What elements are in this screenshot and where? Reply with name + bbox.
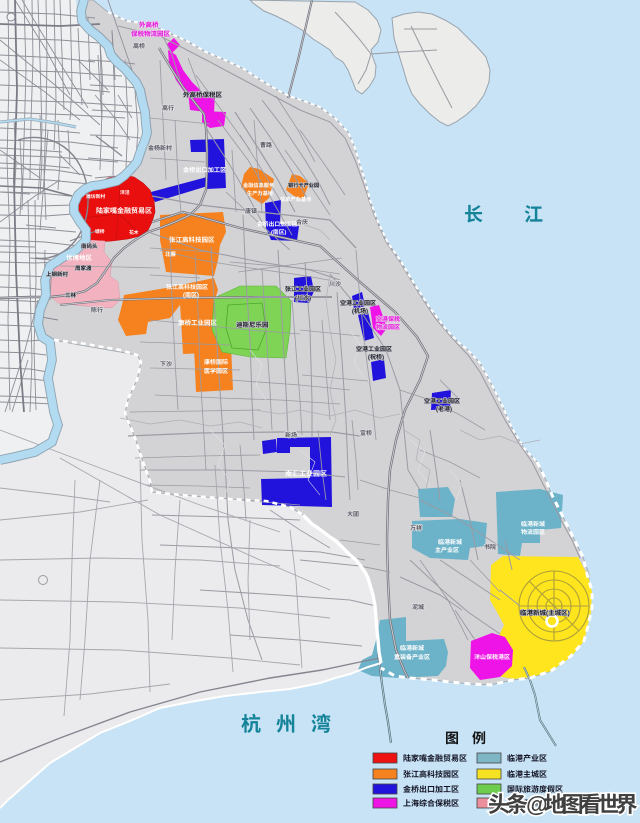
svg-text:外高桥保税区: 外高桥保税区: [183, 91, 223, 99]
svg-text:高行: 高行: [162, 104, 174, 112]
svg-text:塘桥: 塘桥: [95, 228, 105, 235]
svg-text:杭: 杭: [241, 713, 261, 736]
svg-text:花木: 花木: [129, 229, 139, 236]
svg-text:康桥国际: 康桥国际: [204, 358, 228, 366]
svg-text:金桥出口加工区: 金桥出口加工区: [183, 166, 226, 174]
svg-text:北蔡: 北蔡: [165, 251, 177, 258]
svg-text:迪斯尼乐园: 迪斯尼乐园: [236, 321, 269, 329]
svg-text:主产业区: 主产业区: [435, 546, 459, 554]
svg-text:洋山保税港区: 洋山保税港区: [474, 653, 510, 661]
svg-text:(机场): (机场): [352, 307, 368, 315]
svg-text:(祝桥): (祝桥): [368, 353, 384, 361]
svg-text:金桥出口加工区: 金桥出口加工区: [257, 221, 298, 228]
svg-text:川沙: 川沙: [329, 280, 341, 288]
svg-text:大团: 大团: [347, 510, 359, 518]
svg-text:金融信息服务: 金融信息服务: [243, 182, 275, 189]
svg-text:泥城: 泥城: [412, 603, 424, 611]
svg-text:信息产业基地: 信息产业基地: [280, 196, 312, 203]
svg-text:下沙: 下沙: [160, 360, 172, 368]
svg-text:空港保税: 空港保税: [376, 315, 400, 323]
svg-text:(南区): (南区): [271, 229, 287, 236]
svg-text:重装备产业区: 重装备产业区: [394, 653, 430, 661]
svg-text:潍坊新村: 潍坊新村: [86, 193, 105, 200]
svg-text:州: 州: [276, 714, 296, 736]
svg-text:物流园区: 物流园区: [376, 323, 400, 331]
svg-text:(南区): (南区): [183, 291, 199, 299]
svg-text:湾: 湾: [311, 713, 331, 736]
svg-text:空港工业园区: 空港工业园区: [424, 397, 460, 405]
svg-text:张江工业园区: 张江工业园区: [285, 285, 321, 293]
svg-text:高桥: 高桥: [133, 42, 145, 50]
svg-text:康桥工业园区: 康桥工业园区: [178, 319, 218, 327]
svg-text:医学园区: 医学园区: [204, 367, 228, 375]
svg-text:陆家嘴金融贸易区: 陆家嘴金融贸易区: [403, 754, 467, 763]
svg-text:三林: 三林: [65, 292, 77, 299]
svg-text:头条 @地图看世界: 头条 @地图看世界: [488, 792, 638, 817]
svg-text:临港新城: 临港新城: [400, 644, 424, 652]
svg-text:陆家嘴金融贸易区: 陆家嘴金融贸易区: [96, 206, 152, 215]
svg-text:银行卡产业园: 银行卡产业园: [288, 182, 319, 189]
svg-text:临港新城: 临港新城: [438, 538, 462, 546]
svg-text:上海综合保税区: 上海综合保税区: [403, 799, 459, 808]
svg-text:临港产业区: 临港产业区: [507, 754, 547, 763]
svg-text:张江高科技园区: 张江高科技园区: [169, 236, 215, 244]
svg-text:江: 江: [524, 205, 543, 226]
svg-text:南汇工业园区: 南汇工业园区: [285, 470, 327, 478]
svg-text:保税物流园区: 保税物流园区: [131, 30, 171, 38]
svg-text:唐镇: 唐镇: [245, 207, 257, 215]
svg-text:上钢新村: 上钢新村: [46, 271, 69, 278]
svg-text:张江高科技园区: 张江高科技园区: [166, 283, 208, 291]
svg-text:临港新城: 临港新城: [521, 520, 545, 528]
svg-text:(老港): (老港): [436, 405, 452, 413]
svg-text:万祥: 万祥: [410, 524, 422, 532]
svg-text:物流园区: 物流园区: [521, 528, 545, 536]
svg-text:临港新城(主城区): 临港新城(主城区): [520, 609, 570, 617]
svg-text:生产力基地: 生产力基地: [247, 190, 274, 197]
svg-text:书院: 书院: [484, 543, 496, 551]
svg-text:洋泾: 洋泾: [120, 189, 130, 196]
svg-text:张江高科技园区: 张江高科技园区: [403, 770, 459, 779]
svg-text:临港主城区: 临港主城区: [507, 770, 547, 779]
svg-text:合庆: 合庆: [296, 218, 308, 226]
svg-text:世博地区: 世博地区: [66, 254, 93, 262]
svg-text:长: 长: [464, 204, 483, 226]
svg-text:(川沙): (川沙): [295, 294, 311, 302]
svg-text:金桥出口加工区: 金桥出口加工区: [403, 785, 459, 794]
svg-text:空港工业园区: 空港工业园区: [356, 345, 392, 353]
svg-text:宣桥: 宣桥: [360, 429, 372, 437]
svg-text:曹路: 曹路: [260, 141, 272, 149]
svg-text:南码头: 南码头: [81, 243, 98, 250]
svg-text:陈行: 陈行: [91, 306, 103, 314]
svg-text:金杨新村: 金杨新村: [148, 144, 172, 152]
svg-text:新场: 新场: [285, 431, 297, 439]
svg-text:空港工业园区: 空港工业园区: [340, 299, 376, 307]
svg-text:周家渡: 周家渡: [75, 265, 92, 272]
svg-text:外高桥: 外高桥: [139, 21, 159, 29]
svg-text:图例: 图例: [445, 730, 499, 746]
